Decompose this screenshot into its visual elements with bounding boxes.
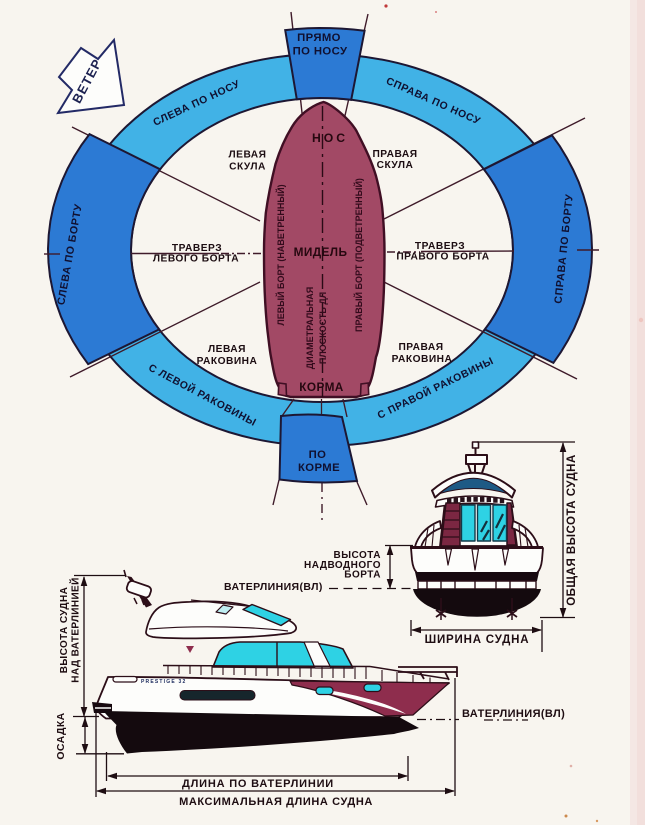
svg-text:СКУЛА: СКУЛА <box>377 160 414 171</box>
svg-text:ВАТЕРЛИНИЯ(ВЛ): ВАТЕРЛИНИЯ(ВЛ) <box>462 708 565 720</box>
svg-text:БОРТА: БОРТА <box>344 570 381 581</box>
svg-text:ПО: ПО <box>309 449 327 461</box>
svg-text:ПРАВОГО БОРТА: ПРАВОГО БОРТА <box>396 252 489 263</box>
svg-text:НОС: НОС <box>312 131 348 145</box>
svg-text:ЛЕВОГО БОРТА: ЛЕВОГО БОРТА <box>153 254 239 265</box>
svg-text:РАКОВИНА: РАКОВИНА <box>197 356 258 367</box>
svg-text:ТРАВЕРЗ: ТРАВЕРЗ <box>415 241 465 252</box>
svg-text:ОСАДКА: ОСАДКА <box>55 712 67 759</box>
svg-text:НАД ВАТЕРЛИНИЕЙ: НАД ВАТЕРЛИНИЕЙ <box>69 577 82 682</box>
svg-text:ПРАВАЯ: ПРАВАЯ <box>372 149 417 160</box>
svg-text:ВАТЕРЛИНИЯ(ВЛ): ВАТЕРЛИНИЯ(ВЛ) <box>224 581 323 593</box>
svg-text:ШИРИНА СУДНА: ШИРИНА СУДНА <box>425 634 530 646</box>
svg-text:ЛЕВАЯ: ЛЕВАЯ <box>229 150 267 161</box>
svg-text:ПРАВЫЙ БОРТ (ПОДВЕТРЕННЫЙ): ПРАВЫЙ БОРТ (ПОДВЕТРЕННЫЙ) <box>353 178 364 332</box>
svg-text:ДЛИНА ПО ВАТЕРЛИНИИ: ДЛИНА ПО ВАТЕРЛИНИИ <box>182 778 334 790</box>
svg-text:ПО НОСУ: ПО НОСУ <box>293 46 348 58</box>
svg-text:КОРМЕ: КОРМЕ <box>298 462 340 474</box>
svg-text:ЛЕВАЯ: ЛЕВАЯ <box>208 344 246 355</box>
svg-text:СКУЛА: СКУЛА <box>229 162 266 173</box>
svg-text:МАКСИМАЛЬНАЯ ДЛИНА СУДНА: МАКСИМАЛЬНАЯ ДЛИНА СУДНА <box>179 796 373 808</box>
svg-text:PRESTIGE 32: PRESTIGE 32 <box>141 679 186 685</box>
svg-text:ПРАВАЯ: ПРАВАЯ <box>398 342 443 353</box>
svg-text:ТРАВЕРЗ: ТРАВЕРЗ <box>172 243 222 254</box>
svg-text:ВЫСОТА СУДНА: ВЫСОТА СУДНА <box>59 587 70 673</box>
svg-text:ПРЯМО: ПРЯМО <box>297 32 341 44</box>
svg-text:ЛЕВЫЙ БОРТ (НАВЕТРЕННЫЙ): ЛЕВЫЙ БОРТ (НАВЕТРЕННЫЙ) <box>275 184 286 325</box>
svg-text:ДИАМЕТРАЛЬНАЯ: ДИАМЕТРАЛЬНАЯ <box>305 287 315 369</box>
svg-text:КОРМА: КОРМА <box>299 380 344 394</box>
svg-text:ПЛОСКОСТЬ ДЛ: ПЛОСКОСТЬ ДЛ <box>318 292 328 364</box>
svg-text:РАКОВИНА: РАКОВИНА <box>392 354 453 365</box>
svg-text:МИДЕЛЬ: МИДЕЛЬ <box>294 245 348 259</box>
svg-text:ОБЩАЯ ВЫСОТА СУДНА: ОБЩАЯ ВЫСОТА СУДНА <box>566 454 578 606</box>
